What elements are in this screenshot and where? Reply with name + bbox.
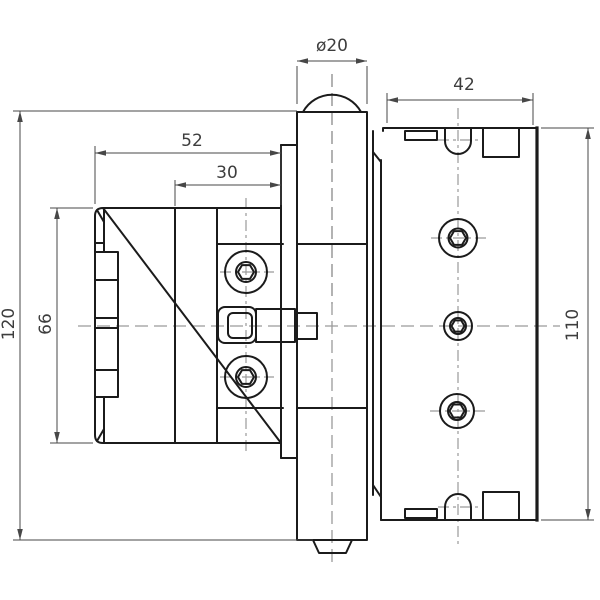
dimension-body-width: 52 — [95, 131, 281, 205]
dimension-body-inner-width: 30 — [175, 163, 281, 206]
bar-top-chamfer — [97, 210, 104, 222]
strip-jog-bottom — [373, 485, 381, 497]
arrow-left — [297, 58, 308, 64]
bottom-slot — [405, 509, 437, 518]
dimension-plate-height: 110 — [541, 128, 594, 520]
centerlines — [78, 74, 560, 562]
arrow-right — [522, 97, 533, 103]
leaf-edge-block — [95, 252, 118, 397]
dim-label-body-inner-width: 30 — [216, 163, 238, 183]
arrow-left — [175, 182, 186, 188]
arrow-up — [17, 111, 23, 122]
technical-drawing-canvas: ø20 42 52 30 120 66 — [0, 0, 600, 600]
strip-jog-top — [373, 152, 381, 162]
hinge-body — [95, 145, 367, 458]
bar-bottom-chamfer — [97, 429, 104, 441]
dim-label-plate-height: 110 — [563, 309, 583, 341]
arrow-right — [270, 150, 281, 156]
arrow-down — [17, 529, 23, 540]
arrow-right — [270, 182, 281, 188]
top-square-tab — [483, 128, 519, 157]
plate-outline — [381, 128, 537, 520]
arrow-left — [387, 97, 398, 103]
dimension-plate-width: 42 — [387, 75, 533, 125]
dim-label-plate-width: 42 — [453, 75, 475, 95]
dim-label-body-height: 66 — [36, 313, 56, 335]
hinge-drawing: ø20 42 52 30 120 66 — [0, 0, 600, 600]
arrow-down — [54, 432, 60, 443]
bottom-square-tab — [483, 492, 519, 520]
arrow-up — [585, 128, 591, 139]
arrow-up — [54, 208, 60, 219]
adjustment-tab — [218, 307, 317, 343]
frame-plate — [373, 128, 537, 520]
dim-label-pin-height: 120 — [0, 308, 19, 340]
dim-label-pin-diameter: ø20 — [316, 36, 348, 56]
arrow-right — [356, 58, 367, 64]
arrow-down — [585, 509, 591, 520]
dim-label-body-width: 52 — [181, 131, 203, 151]
top-slot — [405, 131, 437, 140]
arrow-left — [95, 150, 106, 156]
